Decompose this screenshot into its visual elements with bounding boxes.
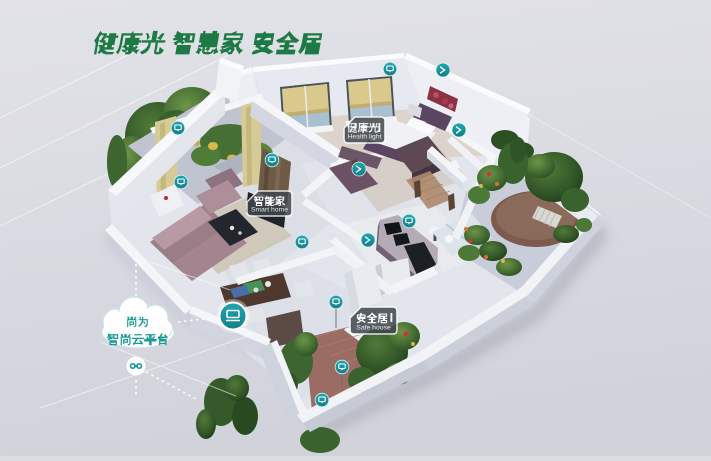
svg-text:Safe house: Safe house: [356, 325, 391, 332]
svg-text:Smart home: Smart home: [251, 207, 288, 214]
svg-text:Health light: Health light: [347, 134, 381, 141]
